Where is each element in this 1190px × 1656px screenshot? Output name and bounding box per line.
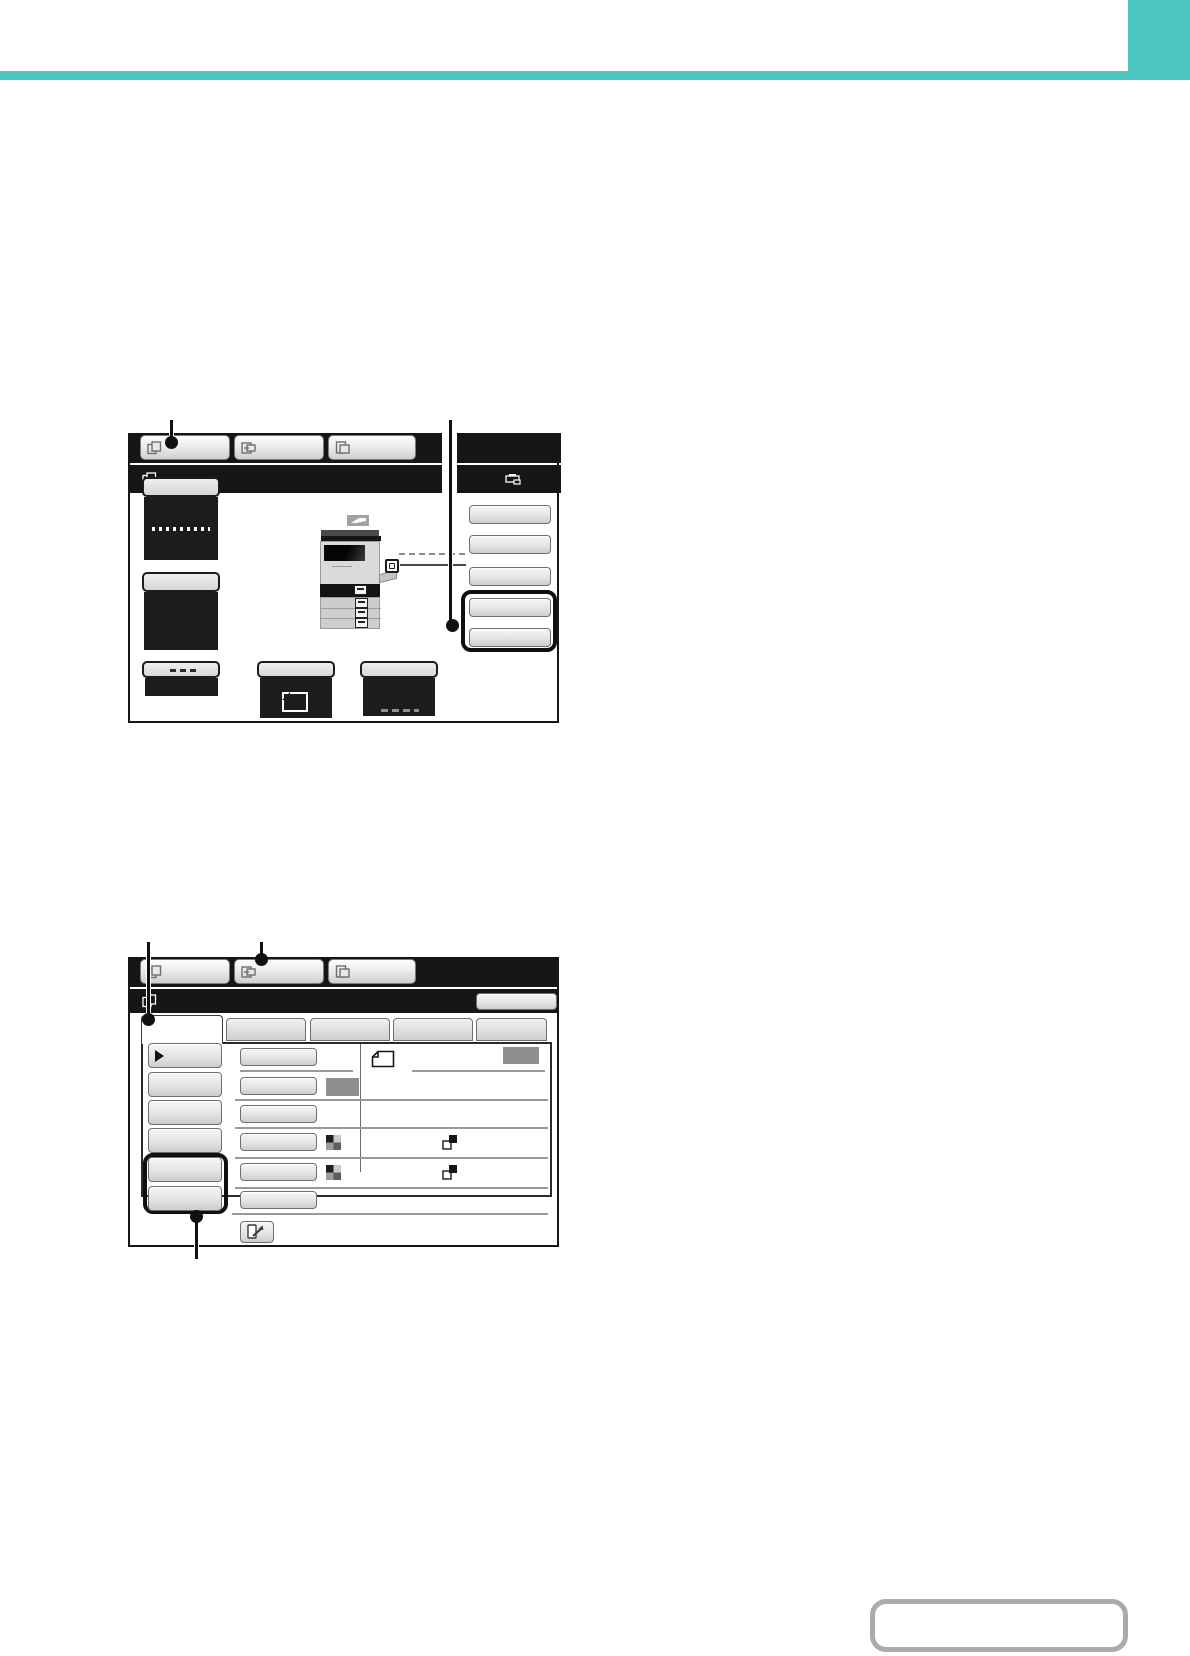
tab-copy[interactable] [140,435,230,460]
image-send-icon [241,965,256,979]
label-mark [170,669,196,672]
callout-dot-tab1 [165,436,178,449]
row-rule [240,1070,353,1072]
drawer-icon [355,608,368,618]
setting-row-2-button[interactable] [240,1077,317,1095]
tab-image-send[interactable] [234,435,324,460]
bottom-button-1-body[interactable] [145,678,218,696]
job-status-header [457,465,561,493]
checker-icon [326,1135,341,1150]
callout-dot-page-tab [142,1013,155,1026]
label-mark [381,709,419,712]
left-menu-button-4[interactable] [148,1128,222,1153]
callout-dot-tab2 [255,953,268,966]
printer-icon [505,473,521,485]
tab-copy[interactable] [140,959,230,984]
left-button-2-body[interactable] [144,592,218,650]
document-page-icon [385,559,399,573]
tab-document-filing[interactable] [328,959,416,984]
tab-image-send[interactable] [234,959,324,984]
expand-icon [247,1224,267,1240]
page-tab-5[interactable] [476,1018,547,1041]
setting-row-6-button[interactable] [240,1191,317,1209]
callout-dot-left-menu [190,1210,203,1223]
control-panel [324,545,365,561]
row-rule [232,1213,548,1215]
row-rule [412,1070,545,1072]
bottom-button-3-header[interactable] [360,661,438,678]
page-note-box [870,1599,1128,1652]
mode-tab-bar-right [457,433,561,463]
row-rule [235,1157,548,1159]
sheet-icon [371,1050,395,1068]
color-swatch [326,1078,359,1096]
left-button-1-header[interactable] [142,477,220,497]
title-bar-right-button[interactable] [476,993,557,1010]
left-button-2-header[interactable] [142,572,220,592]
overlap-squares-icon [442,1135,457,1150]
bottom-button-1-header[interactable] [142,661,220,678]
callout-dot-jobstatus [446,619,459,632]
job-status-button-4[interactable] [469,598,551,617]
bottom-button-2-body[interactable] [260,678,332,718]
drawer-icon [355,598,368,608]
bottom-button-3-body[interactable] [363,678,435,716]
page-tab-4[interactable] [393,1018,473,1041]
bottom-button-2-header[interactable] [257,661,335,678]
job-status-button-1[interactable] [469,505,551,524]
redacted-caption [399,553,465,555]
overlap-squares-icon [442,1165,457,1180]
page-tab-2[interactable] [226,1018,306,1041]
setting-row-3-button[interactable] [240,1105,317,1123]
row-rule [235,1127,548,1129]
row-rule [235,1187,548,1189]
rows-divider [360,1044,361,1172]
paper-trays [320,597,380,629]
manual-page [0,0,1190,1656]
left-menu-button-1[interactable] [148,1043,222,1068]
image-send-icon [241,441,256,455]
document-filing-icon [335,965,350,979]
screenshot-main-screen [128,433,559,723]
left-menu-button-2[interactable] [148,1072,222,1097]
panel-line [332,566,352,567]
caption-rule [400,564,466,566]
setting-row-1-button[interactable] [240,1048,317,1066]
feeder-tray [347,515,369,526]
setting-row-4-button[interactable] [240,1133,317,1151]
callout-line-page-tab [146,942,151,1016]
play-arrow-icon [155,1050,164,1062]
title-bar [130,989,559,1013]
drawer-icon [355,618,368,628]
left-menu-button-3[interactable] [148,1100,222,1125]
drawer-icon [354,585,367,595]
blank-page-icon [282,692,308,712]
document-filing-icon [335,441,350,455]
callout-line-left-menu [194,1218,199,1259]
page-accent-band [0,71,1190,80]
copy-icon [147,441,162,455]
job-status-button-5[interactable] [469,628,551,647]
left-menu-button-5[interactable] [148,1157,222,1182]
expand-settings-button[interactable] [240,1221,274,1243]
row-rule [235,1099,548,1101]
machine-dark-band [320,584,380,597]
job-status-button-3[interactable] [469,567,551,586]
job-status-button-2[interactable] [469,535,551,554]
tab-document-filing[interactable] [328,435,416,460]
screenshot-copy-settings [128,957,559,1247]
callout-line-jobstatus [448,420,453,622]
color-swatch [503,1047,539,1064]
checker-icon [326,1165,341,1180]
left-menu-button-6[interactable] [148,1186,222,1211]
page-tab-3[interactable] [310,1018,390,1041]
setting-row-5-button[interactable] [240,1163,317,1181]
left-button-1-body[interactable] [144,497,218,560]
multifunction-printer-illustration [318,513,433,633]
page-corner-block [1128,0,1190,80]
dotted-indicator [152,527,210,531]
